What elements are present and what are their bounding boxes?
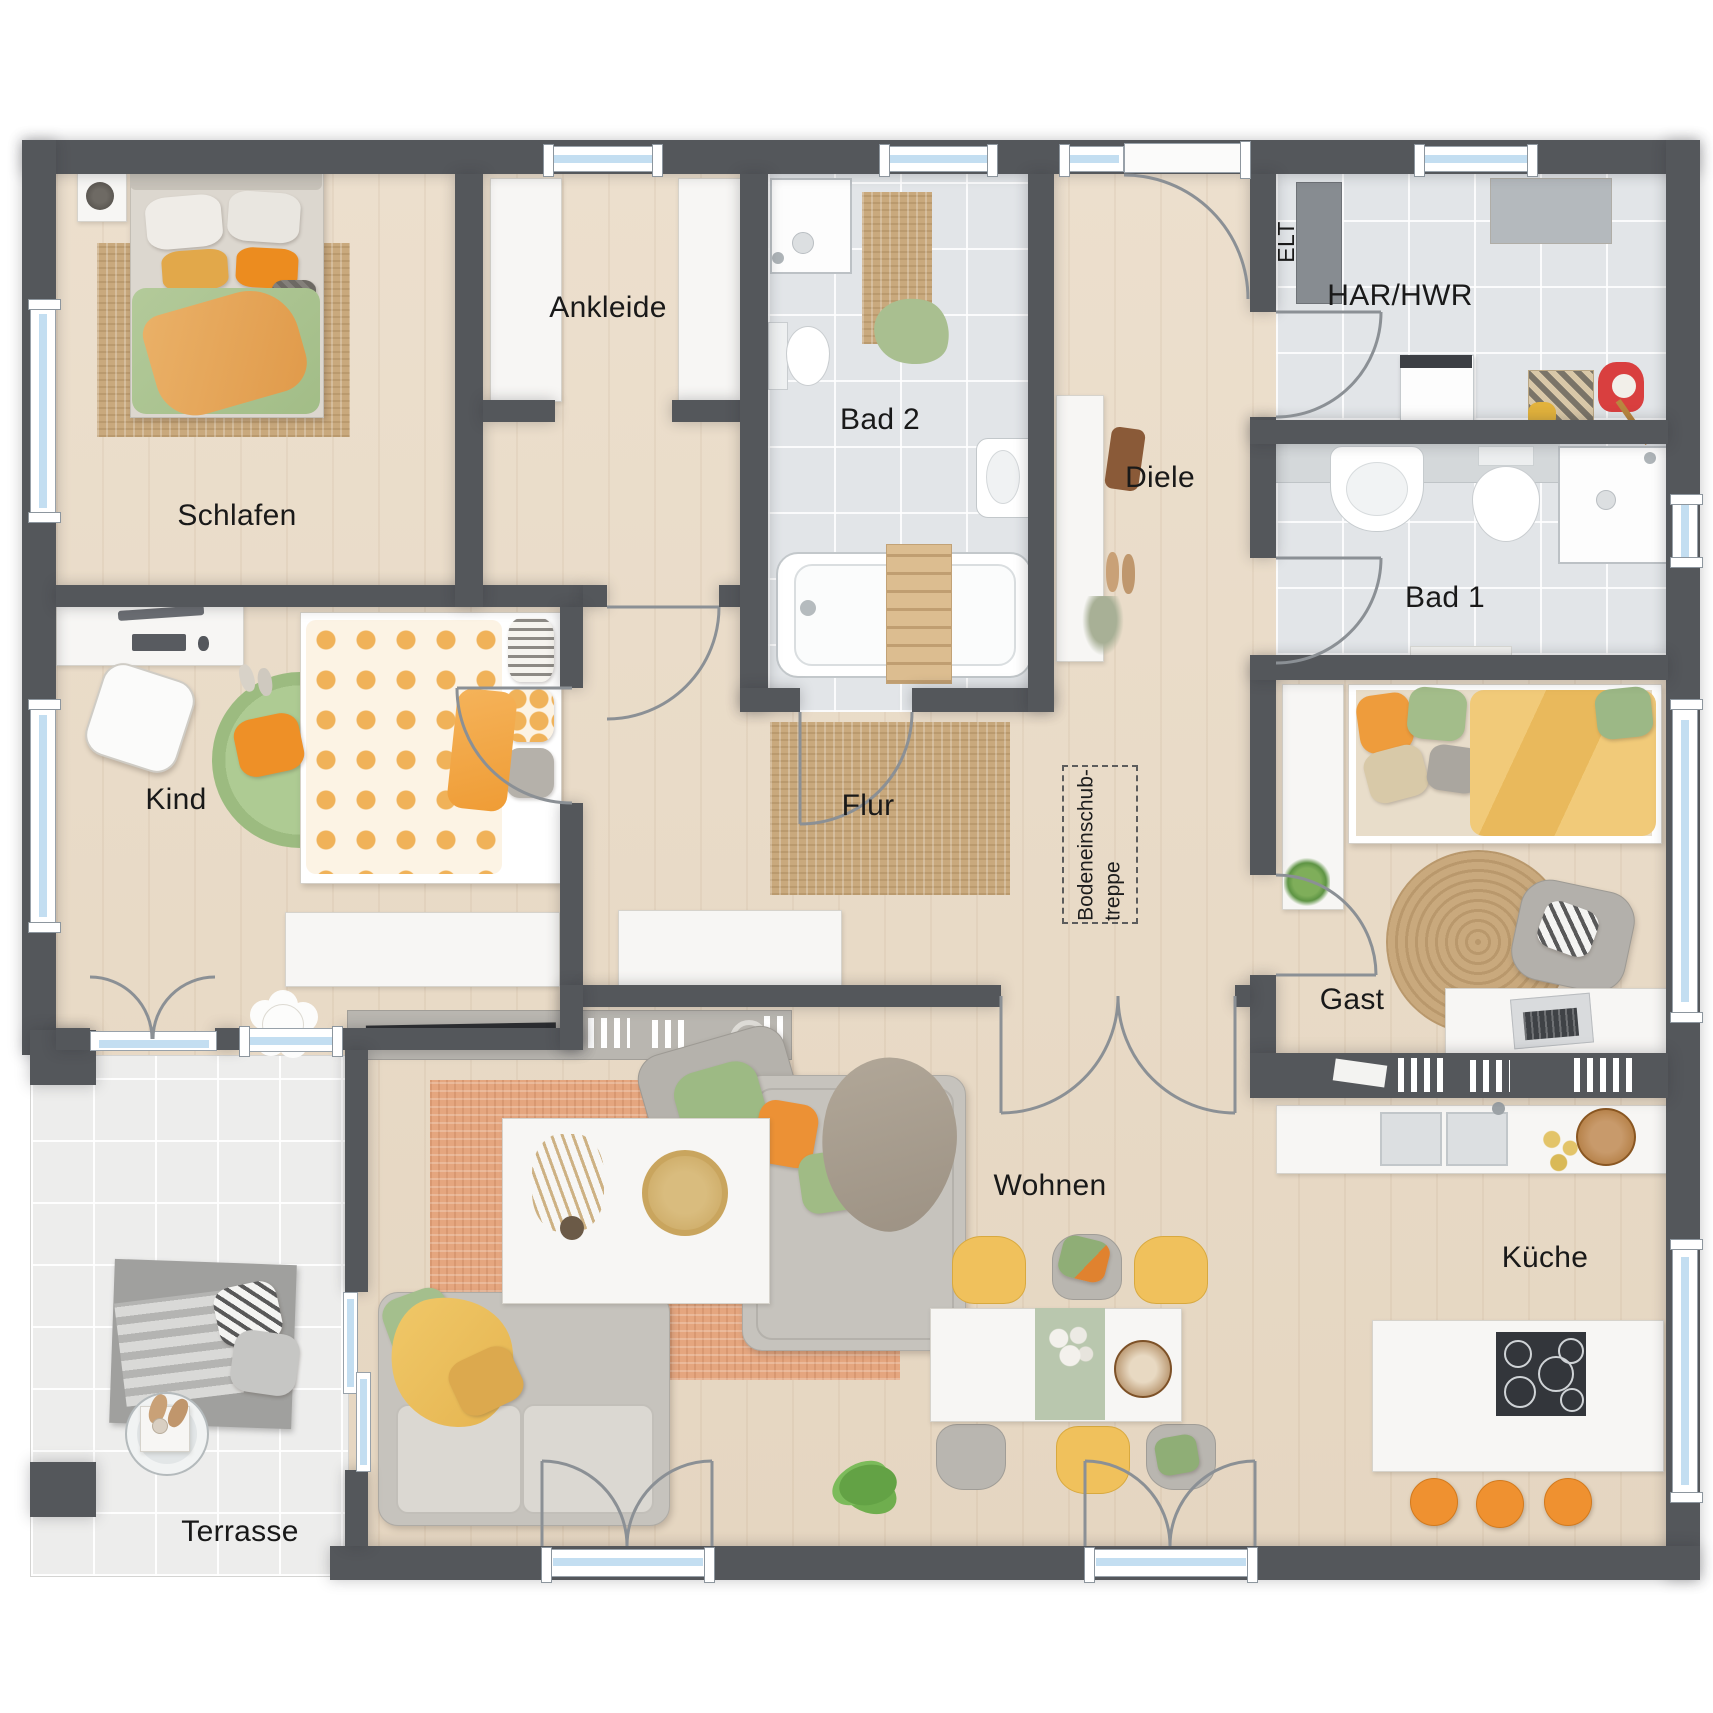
books	[652, 1020, 686, 1048]
shower-head	[1644, 452, 1656, 464]
room-label-flur: Flur	[842, 789, 895, 824]
wall-exterior-bottom	[330, 1546, 1700, 1580]
faucet	[1492, 1102, 1505, 1115]
window-ankleide	[544, 146, 662, 172]
room-label-wohnen: Wohnen	[994, 1169, 1107, 1204]
wall-kind-bottom	[340, 1028, 583, 1050]
wall-diele-right	[1250, 975, 1276, 1053]
shoes	[1106, 552, 1119, 592]
sink-basin	[986, 450, 1020, 504]
window-bad2	[880, 146, 997, 172]
room-label-har-hwr: HAR/HWR	[1327, 279, 1472, 314]
room-label-terrasse: Terrasse	[181, 1515, 298, 1550]
books	[588, 1018, 630, 1048]
room-label-gast: Gast	[1320, 983, 1385, 1018]
french-door-wohnen-left	[542, 1549, 714, 1577]
wall-har-bad1	[1250, 420, 1668, 444]
bar-stool	[1410, 1478, 1458, 1526]
plant-sprigs	[1082, 596, 1124, 656]
table-lamp	[86, 182, 114, 210]
french-door-wohnen-right	[1085, 1549, 1257, 1577]
room-label-diele: Diele	[1125, 461, 1195, 496]
wall-terrace-wohnen	[345, 1050, 368, 1292]
books	[1398, 1058, 1450, 1092]
chair-gray	[936, 1424, 1006, 1490]
wall-schlafen-kind	[56, 585, 583, 607]
wall-terrace-stub	[30, 1462, 96, 1517]
pillow	[144, 193, 224, 251]
pillow-green	[1406, 686, 1468, 743]
room-label-schlafen: Schlafen	[177, 499, 296, 534]
sliding-door-terrasse	[356, 1372, 371, 1472]
wall-bad2-right	[1028, 174, 1054, 712]
tub-caddy	[886, 544, 952, 684]
laptop-keyboard	[1523, 1008, 1579, 1041]
blanket-orange	[446, 687, 518, 813]
wall-bad2-bottom	[740, 688, 800, 712]
wall-bad2-left	[740, 174, 768, 712]
window-kind	[30, 700, 56, 932]
wall-flur-wohnen-stub	[1235, 985, 1250, 1007]
plant	[1284, 856, 1330, 908]
chair-yellow	[1056, 1426, 1130, 1494]
kitchen-sink	[1446, 1112, 1508, 1166]
kitchen-sink	[1380, 1112, 1442, 1166]
gray-pillow	[228, 1328, 302, 1399]
flowers-white	[1042, 1318, 1098, 1376]
pillow-gray	[506, 748, 554, 798]
french-door-kind-leaf	[90, 1031, 217, 1051]
entrance-door-leaf	[1124, 143, 1250, 173]
sofa-cushion	[522, 1404, 654, 1514]
shower-drain	[1596, 490, 1616, 510]
room-label-bad2: Bad 2	[840, 403, 920, 438]
wall-kind-right	[560, 607, 583, 688]
toilet-tank	[768, 322, 788, 390]
houseplant	[820, 1446, 916, 1538]
attic-ladder-outline: Bodeneinschub-treppe	[1062, 765, 1138, 924]
wall-ankleide-stub	[483, 400, 555, 422]
keyboard	[132, 634, 186, 651]
window-har-hwr	[1415, 146, 1537, 172]
wall-corridor-stub	[583, 585, 607, 607]
bar-stool	[1476, 1480, 1524, 1528]
brush	[1612, 374, 1636, 398]
wall-diele-right	[1250, 663, 1276, 875]
window-gast	[1672, 700, 1698, 1022]
room-label-elt: ELT	[1273, 221, 1299, 262]
room-label-bad1: Bad 1	[1405, 581, 1485, 616]
wall-schlafen-ankleide	[455, 174, 483, 607]
serving-bowl	[1114, 1340, 1172, 1398]
utility-counter	[1490, 178, 1612, 244]
shower-head	[772, 252, 784, 264]
books	[1574, 1058, 1632, 1092]
sink-basin	[1346, 462, 1408, 516]
window-kueche	[1672, 1240, 1698, 1502]
pillow	[226, 190, 301, 245]
sideboard-kind	[285, 912, 560, 987]
mouse	[198, 636, 209, 651]
floor-plan: Bodeneinschub-treppe Schlafen Ankleide B…	[0, 0, 1713, 1713]
shoes	[1122, 554, 1135, 594]
wall-flur-wohnen	[583, 985, 1001, 1007]
gold-tray	[642, 1150, 728, 1236]
wall-kind-bottom	[215, 1028, 240, 1050]
books	[1470, 1060, 1510, 1092]
pillow-ochre	[161, 248, 230, 293]
fruit-bowl	[1576, 1108, 1636, 1166]
washer-panel	[1400, 355, 1472, 368]
wall-step-patch	[560, 985, 583, 1050]
window-bad1	[1672, 495, 1698, 567]
window-kind-terrasse	[240, 1028, 342, 1052]
bar-stool	[1544, 1478, 1592, 1526]
wall-corridor-stub	[719, 585, 740, 607]
wall-bad1-gast	[1250, 655, 1668, 680]
wall-terrace-wohnen	[345, 1470, 368, 1546]
wall-ankleide-stub	[672, 400, 740, 422]
cup	[152, 1418, 168, 1434]
shower-drain	[792, 232, 814, 254]
tub-faucet	[800, 600, 816, 616]
entrance-sidelight	[1060, 146, 1124, 172]
chair-yellow	[952, 1236, 1026, 1304]
pillow-striped	[508, 618, 554, 682]
wall-kind-bottom	[56, 1028, 90, 1050]
room-label-kueche: Küche	[1502, 1241, 1589, 1276]
attic-ladder-label: Bodeneinschub-treppe	[1073, 769, 1128, 921]
toilet-tank	[1478, 446, 1534, 466]
room-label-kind: Kind	[145, 783, 206, 818]
window-schlafen	[30, 300, 56, 522]
wardrobe-right	[678, 178, 744, 412]
room-label-ankleide: Ankleide	[549, 291, 666, 326]
cooktop	[1496, 1332, 1586, 1416]
chair-yellow	[1134, 1236, 1208, 1304]
sideboard-flur	[618, 910, 842, 987]
vase	[560, 1216, 584, 1240]
pillow-green	[1594, 685, 1655, 741]
